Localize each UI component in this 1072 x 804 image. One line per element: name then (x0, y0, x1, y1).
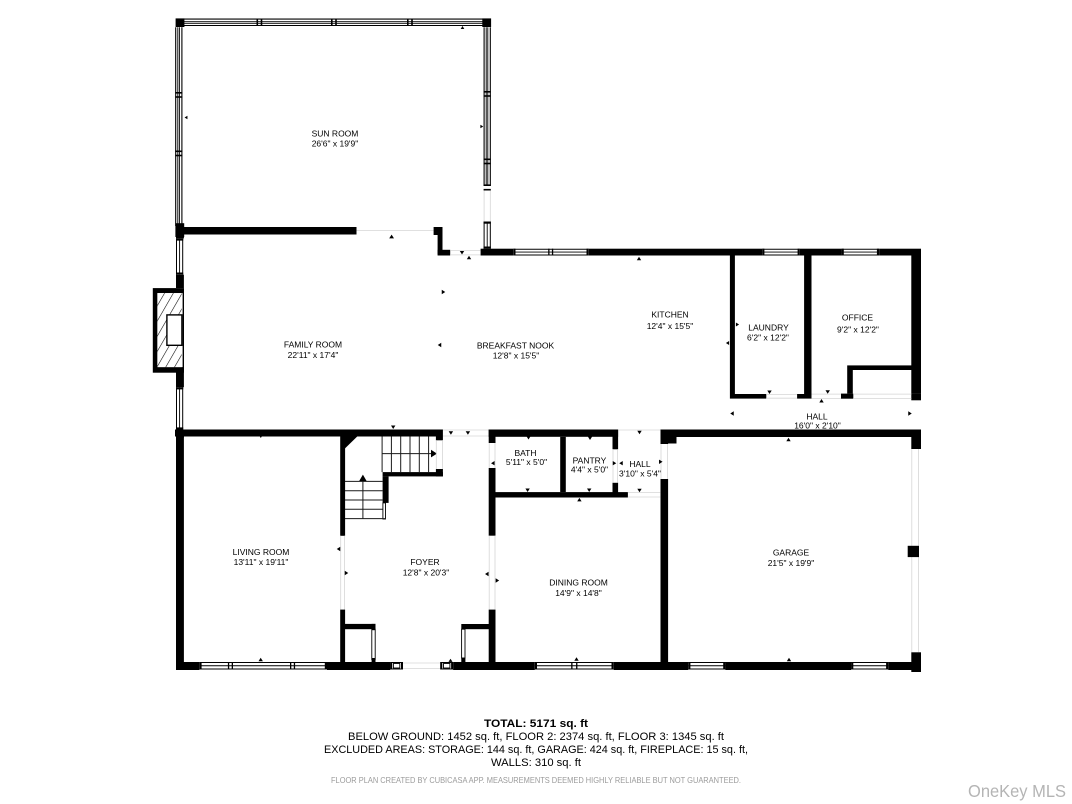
svg-text:FOYER: FOYER (410, 557, 439, 567)
svg-text:LIVING ROOM: LIVING ROOM (233, 547, 290, 557)
svg-text:FAMILY ROOM: FAMILY ROOM (284, 340, 342, 350)
svg-text:KITCHEN: KITCHEN (651, 309, 688, 319)
svg-text:12'8" x 15'5": 12'8" x 15'5" (493, 351, 540, 361)
svg-text:TOTAL: 5171 sq. ft: TOTAL: 5171 sq. ft (484, 718, 588, 730)
svg-text:9'2" x 12'2": 9'2" x 12'2" (837, 324, 879, 334)
svg-text:BREAKFAST NOOK: BREAKFAST NOOK (477, 341, 555, 351)
svg-text:4'4" x 5'0": 4'4" x 5'0" (571, 465, 608, 475)
svg-text:OFFICE: OFFICE (842, 313, 873, 323)
svg-text:WALLS: 310 sq. ft: WALLS: 310 sq. ft (491, 757, 581, 769)
svg-text:14'9" x 14'8": 14'9" x 14'8" (555, 588, 602, 598)
svg-text:OneKey MLS: OneKey MLS (968, 781, 1066, 801)
svg-text:FLOOR PLAN CREATED BY CUBICASA: FLOOR PLAN CREATED BY CUBICASA APP. MEAS… (331, 776, 741, 785)
svg-text:22'11" x 17'4": 22'11" x 17'4" (288, 350, 339, 360)
svg-text:21'5" x 19'9": 21'5" x 19'9" (768, 558, 815, 568)
svg-text:12'4" x 15'5": 12'4" x 15'5" (647, 321, 694, 331)
svg-text:GARAGE: GARAGE (773, 547, 810, 557)
svg-text:BELOW GROUND: 1452 sq. ft, FLO: BELOW GROUND: 1452 sq. ft, FLOOR 2: 2374… (348, 731, 724, 743)
svg-text:SUN ROOM: SUN ROOM (312, 128, 359, 138)
svg-text:DINING ROOM: DINING ROOM (549, 578, 608, 588)
svg-text:26'6" x 19'9": 26'6" x 19'9" (312, 139, 359, 149)
svg-text:LAUNDRY: LAUNDRY (748, 322, 789, 332)
svg-text:12'8" x 20'3": 12'8" x 20'3" (403, 568, 450, 578)
svg-text:5'11" x 5'0": 5'11" x 5'0" (506, 457, 547, 467)
svg-text:6'2" x 12'2": 6'2" x 12'2" (747, 333, 789, 343)
svg-text:EXCLUDED AREAS: STORAGE: 144 s: EXCLUDED AREAS: STORAGE: 144 sq. ft, GAR… (324, 744, 748, 756)
svg-text:13'11" x 19'11": 13'11" x 19'11" (234, 557, 289, 567)
svg-text:3'10" x 5'4": 3'10" x 5'4" (619, 468, 661, 478)
svg-text:16'0" x 2'10": 16'0" x 2'10" (794, 421, 841, 431)
